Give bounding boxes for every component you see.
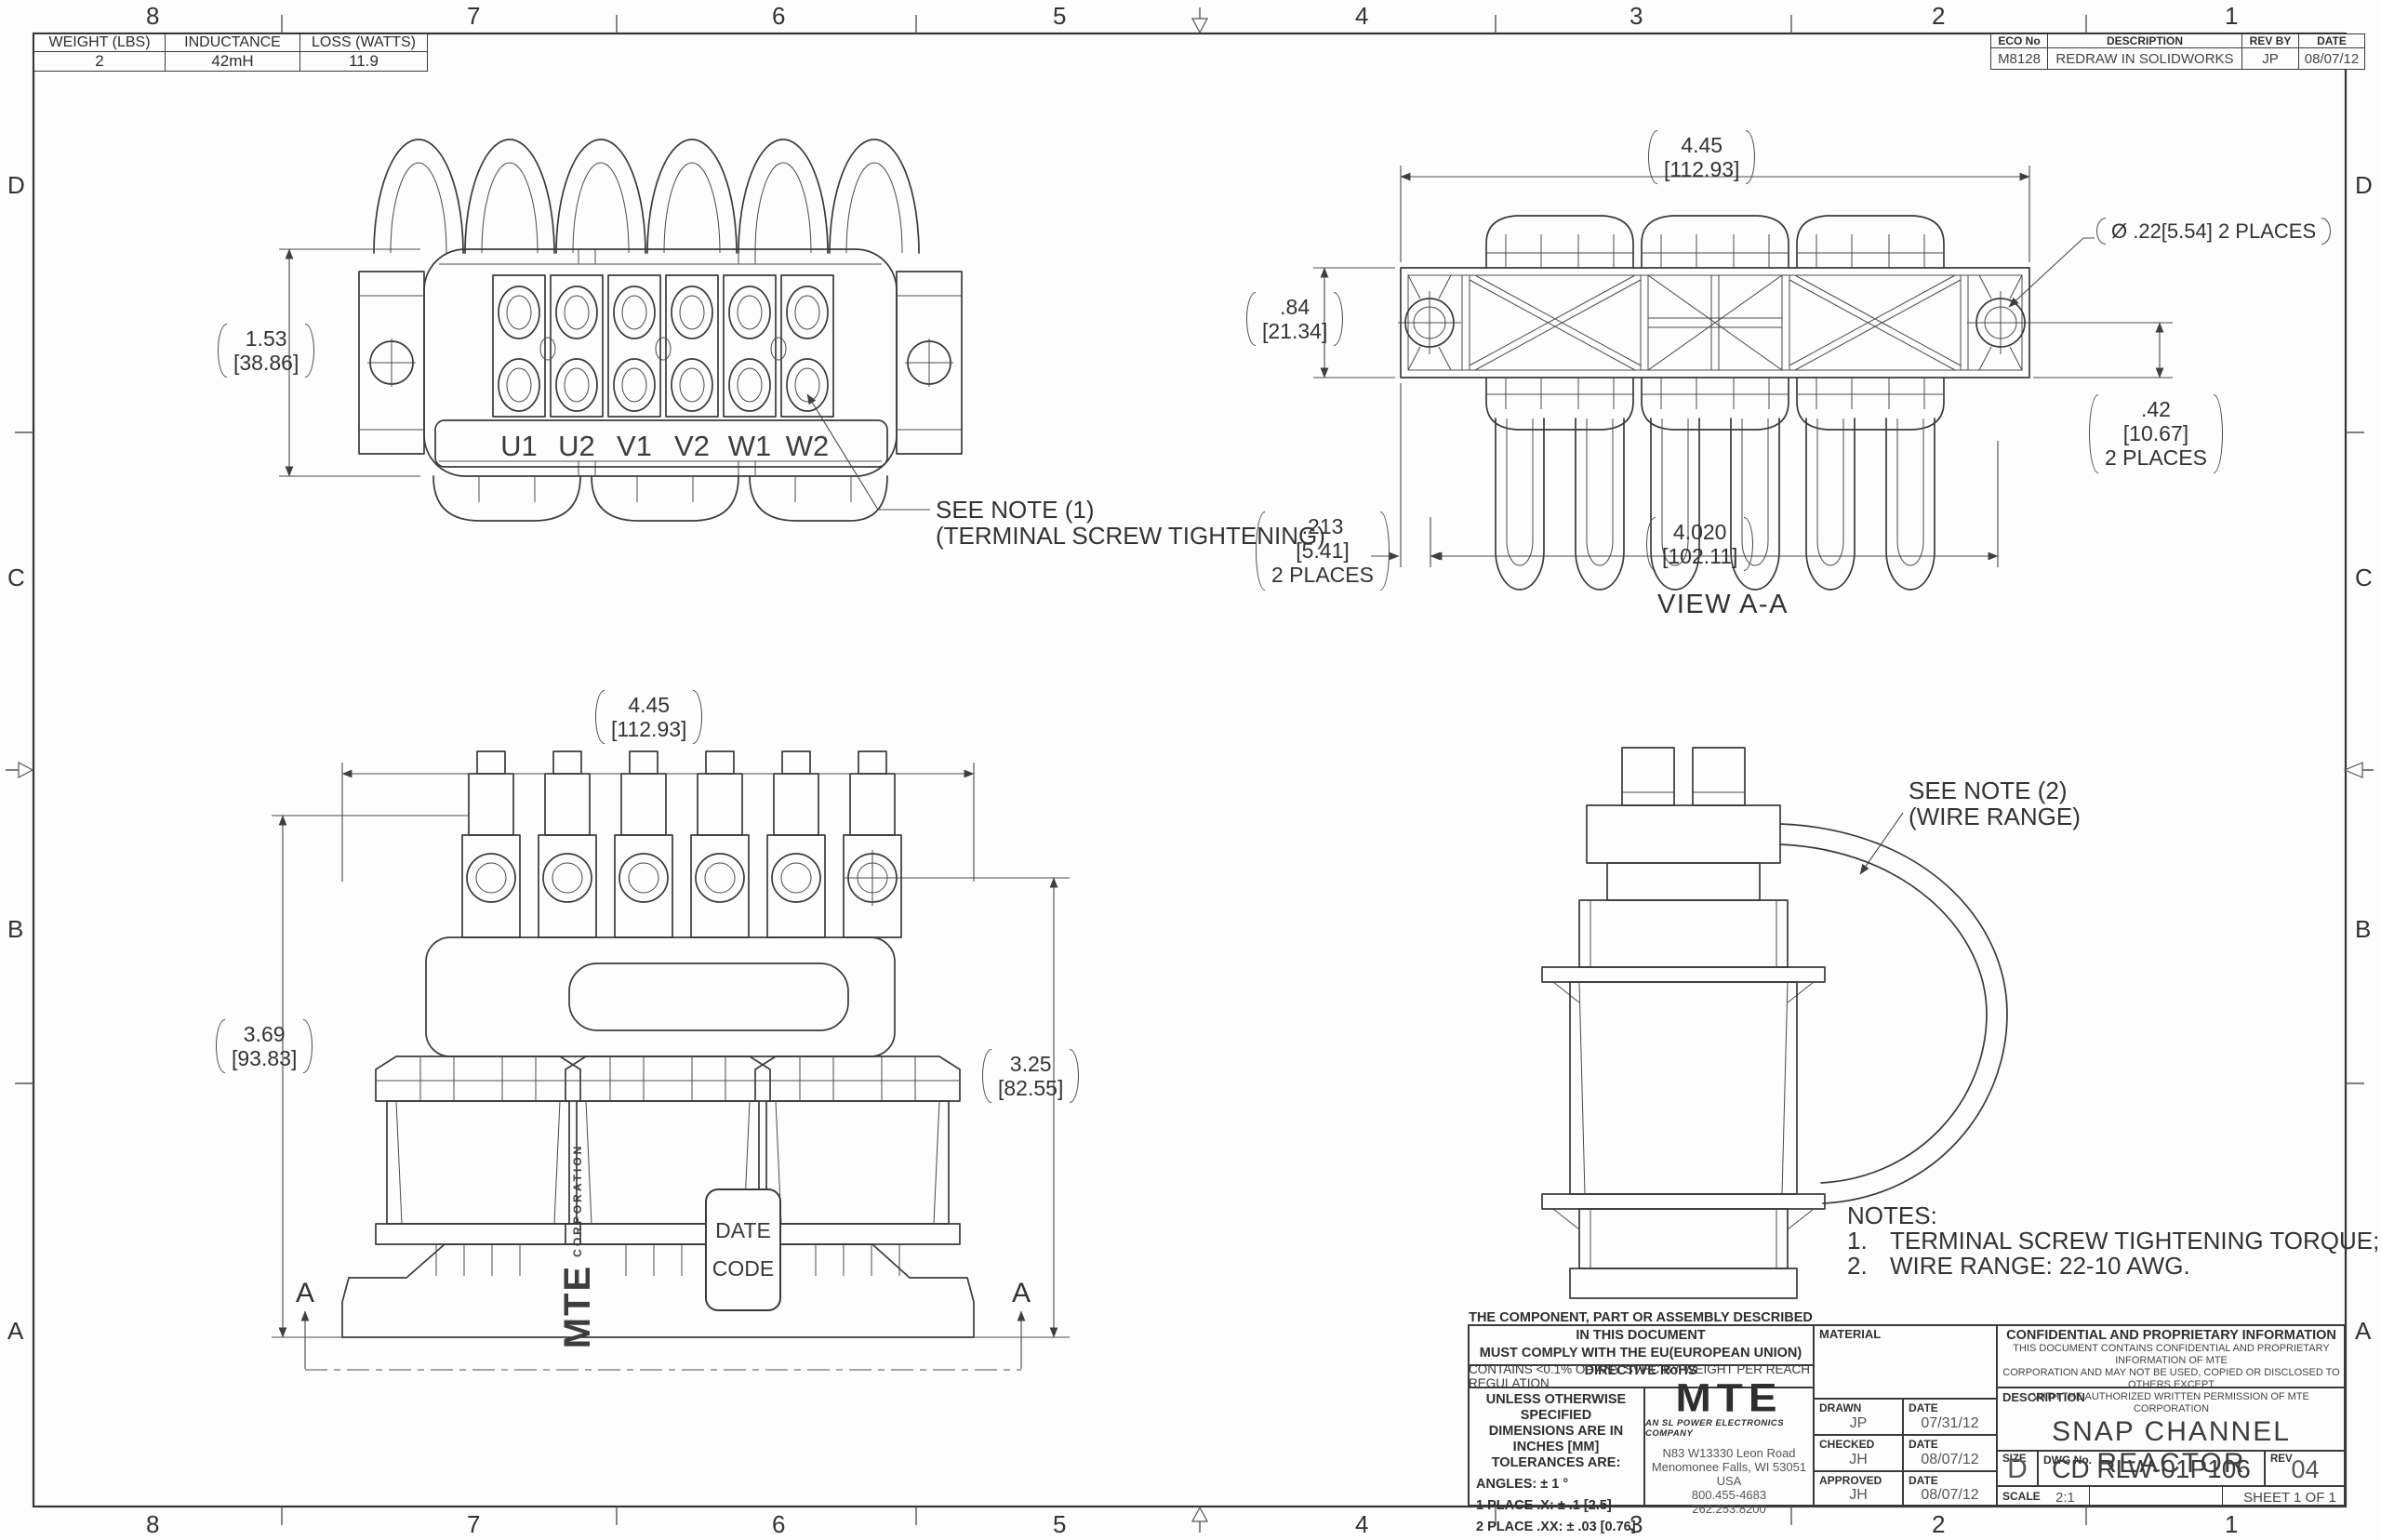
dim-inches: 3.25 <box>1010 1052 1052 1076</box>
dim-top-view-height: 1.53[38.86] <box>218 324 314 378</box>
paren-left <box>1648 130 1657 184</box>
eco-header-desc: DESCRIPTION <box>2048 34 2242 48</box>
date-code-plate: DATE CODE <box>705 1188 781 1311</box>
date-label: DATE <box>1909 1401 1938 1414</box>
scale-divider-2 <box>2222 1487 2223 1506</box>
dim-front-height2: 3.25[82.55] <box>982 1049 1079 1103</box>
material-label: MATERIAL <box>1819 1327 1881 1341</box>
approved-cell: APPROVED JH <box>1814 1471 1903 1507</box>
terminal-screws-top-row <box>499 286 828 339</box>
dim-inches: 4.020 <box>1673 520 1727 544</box>
dim-mm: [38.86] <box>233 351 299 375</box>
zone-left-b: B <box>7 915 23 944</box>
terminal-label-u1: U1 <box>500 430 538 462</box>
note1-line2: (TERMINAL SCREW TIGHTENING) <box>936 523 1325 549</box>
rev-cell: REV 04 <box>2265 1451 2346 1486</box>
eco-table: ECO No DESCRIPTION REV BY DATE M8128 RED… <box>1990 33 2365 70</box>
zone-top-6: 6 <box>772 2 785 31</box>
terminal-label-v1: V1 <box>617 430 652 462</box>
paren-right <box>1746 130 1755 184</box>
notes-title: NOTES: <box>1847 1203 2381 1228</box>
dim-inches: 3.69 <box>244 1022 286 1046</box>
eco-revby: JP <box>2242 48 2299 70</box>
terminal-mid-holes <box>540 338 786 360</box>
tolerances-box: UNLESS OTHERWISE SPECIFIED DIMENSIONS AR… <box>1468 1387 1644 1507</box>
approved-date-cell: DATE 08/07/12 <box>1903 1471 1997 1507</box>
paren-left <box>218 324 227 378</box>
dim-viewaa-slot: 4.020[102.11] <box>1646 517 1753 571</box>
view-aa-label: VIEW A-A <box>1657 590 1789 620</box>
eco-no: M8128 <box>1991 48 2048 70</box>
confidential-title: CONFIDENTIAL AND PROPRIETARY INFORMATION <box>1998 1328 2345 1343</box>
address-line1: N83 W13330 Leon Road <box>1645 1446 1813 1460</box>
logo-address-box: MTE AN SL POWER ELECTRONICS COMPANY N83 … <box>1644 1387 1814 1507</box>
dim-note: 2 PLACES <box>1271 563 1374 587</box>
approved-label: APPROVED <box>1819 1474 1882 1487</box>
drawing-sheet: U1 U2 V1 V2 W1 W2 <box>0 0 2381 1540</box>
checked-date-cell: DATE 08/07/12 <box>1903 1435 1997 1471</box>
paren-right <box>693 690 702 744</box>
note-item-2: 2. WIRE RANGE: 22-10 AWG. <box>1847 1254 2381 1279</box>
paren-left <box>982 1049 991 1103</box>
paren-right <box>303 1019 313 1073</box>
front-terminals <box>462 751 901 937</box>
address-block: N83 W13330 Leon Road Menomonee Falls, WI… <box>1645 1446 1813 1516</box>
eco-header-date: DATE <box>2299 34 2365 48</box>
dim-mm: [93.83] <box>232 1046 297 1070</box>
zone-bottom-4: 4 <box>1355 1510 1368 1539</box>
note-number: 1. <box>1847 1228 1890 1254</box>
size-value: D <box>1998 1454 2037 1485</box>
dim-front-height1: 3.69[93.83] <box>216 1019 313 1073</box>
terminal-label-u2: U2 <box>558 430 595 462</box>
scale-value: 2:1 <box>2055 1490 2075 1506</box>
dim-note: 2 PLACES <box>2105 445 2207 470</box>
drawing-canvas: U1 U2 V1 V2 W1 W2 <box>0 0 2381 1540</box>
rev-value: 04 <box>2266 1455 2345 1484</box>
zone-top-3: 3 <box>1629 2 1643 31</box>
spec-header-loss: LOSS (WATTS) <box>300 34 428 52</box>
eco-date: 08/07/12 <box>2299 48 2365 70</box>
note-item-1: 1. TERMINAL SCREW TIGHTENING TORQUE; 4.5… <box>1847 1228 2381 1254</box>
dwg-no-cell: DWG No. CD RLW-01P106 <box>2038 1451 2265 1486</box>
note-text: WIRE RANGE: 22-10 AWG. <box>1890 1254 2190 1279</box>
zone-top-4: 4 <box>1355 2 1368 31</box>
paren-left <box>595 690 605 744</box>
dim-viewaa-hole-callout: Ø .22[5.54] 2 PLACES <box>2096 218 2331 245</box>
drawn-date-cell: DATE 07/31/12 <box>1903 1399 1997 1435</box>
note2-reference: SEE NOTE (2) (WIRE RANGE) <box>1909 777 2081 830</box>
checked-date: 08/07/12 <box>1904 1452 1996 1468</box>
paren-left <box>216 1019 225 1073</box>
dim-mm: [10.67] <box>2123 421 2188 445</box>
description-label: DESCRIPTION <box>2002 1390 2085 1404</box>
note2-line1: SEE NOTE (2) <box>1909 777 2081 803</box>
address-phone1: 800.455-4683 <box>1645 1488 1813 1502</box>
rohs-compliance-box: THE COMPONENT, PART OR ASSEMBLY DESCRIBE… <box>1468 1324 1814 1365</box>
date-label: DATE <box>1909 1474 1938 1487</box>
note-number: 2. <box>1847 1254 1890 1279</box>
tol-header3: TOLERANCES ARE: <box>1469 1455 1643 1471</box>
spec-value-weight: 2 <box>34 52 166 72</box>
center-mark-right <box>2345 763 2374 777</box>
dim-mm: [21.34] <box>1262 319 1327 343</box>
tol-angles: ANGLES: ± 1 ° <box>1476 1477 1643 1493</box>
sheet-number: SHEET 1 OF 1 <box>2235 1490 2345 1506</box>
zone-left-a: A <box>7 1317 23 1346</box>
zone-top-1: 1 <box>2225 2 2238 31</box>
center-mark-top <box>1192 7 1207 33</box>
date-code-line1: DATE <box>715 1218 771 1243</box>
zone-bottom-8: 8 <box>146 1510 159 1539</box>
front-view-geometry: A A <box>272 751 1070 1370</box>
dim-viewaa-height: .84[21.34] <box>1246 292 1343 346</box>
section-letter-left: A <box>296 1278 314 1308</box>
center-mark-bottom <box>1192 1507 1207 1533</box>
scale-label: SCALE <box>2002 1490 2041 1503</box>
description-box: DESCRIPTION SNAP CHANNEL REACTOR <box>1997 1387 2346 1451</box>
paren-right <box>1744 517 1753 571</box>
zone-top-7: 7 <box>467 2 480 31</box>
section-letter-right: A <box>1012 1278 1031 1308</box>
paren-right <box>305 324 314 378</box>
dim-inches: .42 <box>2141 397 2171 421</box>
terminal-screws-bottom-row <box>499 359 828 411</box>
note1-reference: SEE NOTE (1) (TERMINAL SCREW TIGHTENING) <box>936 497 1325 549</box>
checked-initials: JH <box>1815 1452 1902 1468</box>
paren-left <box>2089 394 2098 473</box>
mte-logo: MTE <box>1675 1380 1782 1414</box>
tol-header1: UNLESS OTHERWISE SPECIFIED <box>1469 1392 1643 1424</box>
material-box: MATERIAL <box>1814 1324 1997 1399</box>
confidential-box: CONFIDENTIAL AND PROPRIETARY INFORMATION… <box>1997 1324 2346 1387</box>
zone-top-8: 8 <box>146 2 159 31</box>
dim-mm: [82.55] <box>998 1076 1063 1100</box>
scale-row: SCALE 2:1 SHEET 1 OF 1 <box>1997 1486 2346 1507</box>
dim-inches: 4.45 <box>1681 133 1723 157</box>
drawn-cell: DRAWN JP <box>1814 1399 1903 1435</box>
notes-block: NOTES: 1. TERMINAL SCREW TIGHTENING TORQ… <box>1847 1203 2381 1279</box>
zone-right-d: D <box>2355 171 2373 200</box>
spec-header-inductance: INDUCTANCE <box>166 34 300 52</box>
confidential-line1: THIS DOCUMENT CONTAINS CONFIDENTIAL AND … <box>1998 1343 2345 1367</box>
dim-inches: .84 <box>1280 295 1310 319</box>
spec-value-inductance: 42mH <box>166 52 300 72</box>
spec-table: WEIGHT (LBS) INDUCTANCE LOSS (WATTS) 2 4… <box>33 33 428 72</box>
address-line2: Menomonee Falls, WI 53051 USA <box>1645 1460 1813 1488</box>
dim-mm: [112.93] <box>1664 157 1739 181</box>
address-phone2: 262.253.8200 <box>1645 1502 1813 1516</box>
spec-value-loss: 11.9 <box>300 52 428 72</box>
zone-right-b: B <box>2355 915 2371 944</box>
dwg-no-value: CD RLW-01P106 <box>2039 1454 2264 1484</box>
paren-right <box>1070 1049 1079 1103</box>
logo-tagline: AN SL POWER ELECTRONICS COMPANY <box>1645 1418 1813 1439</box>
date-code-line2: CODE <box>712 1256 774 1281</box>
tol-header2: DIMENSIONS ARE IN INCHES [MM] <box>1469 1424 1643 1455</box>
dim-mm: [112.93] <box>611 717 686 741</box>
spec-header-weight: WEIGHT (LBS) <box>34 34 166 52</box>
paren-right <box>2214 394 2223 473</box>
paren-right <box>1380 511 1390 591</box>
compliance-line1: THE COMPONENT, PART OR ASSEMBLY DESCRIBE… <box>1469 1309 1813 1345</box>
brand-logo-vertical: MTE <box>557 1265 599 1348</box>
paren-right <box>2321 218 2331 245</box>
drawn-date: 07/31/12 <box>1904 1415 1996 1432</box>
terminal-label-w1: W1 <box>728 430 772 462</box>
zone-bottom-6: 6 <box>772 1510 785 1539</box>
note-text: TERMINAL SCREW TIGHTENING TORQUE; 4.5 in… <box>1890 1228 2381 1254</box>
terminal-screws-top-row-inner <box>507 296 819 329</box>
note2-line2: (WIRE RANGE) <box>1909 803 2081 830</box>
scale-divider-1 <box>2089 1487 2090 1506</box>
tol-place2: 2 PLACE .XX: ± .03 [0.76] <box>1476 1520 1643 1535</box>
zone-left-c: C <box>7 564 25 592</box>
dim-inches: 4.45 <box>628 693 670 717</box>
date-label: DATE <box>1909 1438 1938 1451</box>
approved-date: 08/07/12 <box>1904 1487 1996 1504</box>
terminal-screws-bottom-row-inner <box>507 368 819 402</box>
center-mark-left <box>6 763 33 777</box>
eco-header-no: ECO No <box>1991 34 2048 48</box>
sheet-border <box>6 7 2374 1533</box>
approved-initials: JH <box>1815 1487 1902 1504</box>
paren-left <box>2096 218 2106 245</box>
tol-place1: 1 PLACE .X: ± .1 [2.5] <box>1476 1498 1643 1514</box>
zone-bottom-5: 5 <box>1053 1510 1066 1539</box>
checked-label: CHECKED <box>1819 1438 1874 1451</box>
zone-right-c: C <box>2355 564 2373 592</box>
dim-viewaa-width: 4.45[112.93] <box>1648 130 1755 184</box>
paren-left <box>1246 292 1256 346</box>
zone-bottom-1: 1 <box>2225 1510 2238 1539</box>
terminal-label-v2: V2 <box>674 430 710 462</box>
dim-mm: [102.11] <box>1662 544 1737 568</box>
zone-bottom-2: 2 <box>1932 1510 1945 1539</box>
drawn-initials: JP <box>1815 1415 1902 1432</box>
paren-right <box>1334 292 1343 346</box>
paren-left <box>1646 517 1656 571</box>
zone-bottom-7: 7 <box>467 1510 480 1539</box>
dim-viewaa-offset: .42[10.67]2 PLACES <box>2089 394 2223 473</box>
drawn-label: DRAWN <box>1819 1401 1861 1414</box>
eco-header-revby: REV BY <box>2242 34 2299 48</box>
zone-top-5: 5 <box>1053 2 1066 31</box>
zone-left-d: D <box>7 171 25 200</box>
size-cell: SIZE D <box>1997 1451 2038 1486</box>
brand-vertical: MTE CORPORATION <box>552 1153 604 1339</box>
dim-inches: 1.53 <box>246 326 287 351</box>
brand-sub-vertical: CORPORATION <box>571 1144 584 1257</box>
dim-front-width: 4.45[112.93] <box>595 690 702 744</box>
terminal-label-w2: W2 <box>786 430 830 462</box>
zone-top-2: 2 <box>1932 2 1945 31</box>
zone-right-a: A <box>2355 1317 2371 1346</box>
hole-callout-text: Ø .22[5.54] 2 PLACES <box>2111 219 2316 243</box>
note1-line1: SEE NOTE (1) <box>936 497 1325 523</box>
checked-cell: CHECKED JH <box>1814 1435 1903 1471</box>
eco-description: REDRAW IN SOLIDWORKS <box>2048 48 2242 70</box>
top-view-geometry: U1 U2 V1 V2 W1 W2 <box>279 139 962 521</box>
